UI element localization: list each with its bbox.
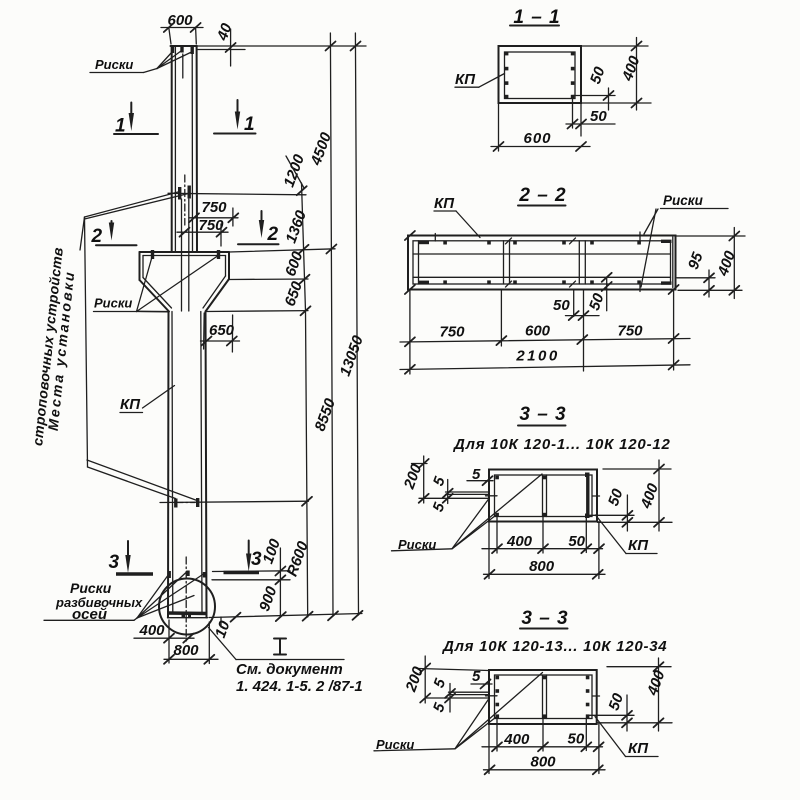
svg-text:3 – 3: 3 – 3 <box>521 608 568 629</box>
svg-text:КП: КП <box>628 537 649 554</box>
svg-text:400: 400 <box>503 731 530 748</box>
svg-text:800: 800 <box>530 754 556 771</box>
svg-text:900: 900 <box>256 584 281 614</box>
svg-text:5: 5 <box>430 474 449 488</box>
svg-text:50: 50 <box>553 297 570 314</box>
svg-text:1360: 1360 <box>283 208 311 246</box>
svg-text:40: 40 <box>214 21 236 44</box>
svg-text:2100: 2100 <box>515 348 559 365</box>
svg-text:3: 3 <box>109 552 120 573</box>
svg-text:Риски: Риски <box>94 296 132 311</box>
svg-text:КП: КП <box>455 71 476 88</box>
svg-text:50: 50 <box>605 486 627 508</box>
svg-text:13050: 13050 <box>337 333 367 379</box>
svg-text:50: 50 <box>590 108 607 125</box>
svg-text:650: 650 <box>282 279 307 309</box>
svg-text:См. документ: См. документ <box>236 661 343 678</box>
svg-text:750: 750 <box>617 323 643 340</box>
svg-text:400: 400 <box>714 248 739 279</box>
svg-text:КП: КП <box>120 396 141 413</box>
svg-text:Для 10К 120-1... 10К 120-12: Для 10К 120-1... 10К 120-12 <box>452 436 671 453</box>
svg-text:2: 2 <box>267 224 279 245</box>
svg-text:5: 5 <box>430 676 449 690</box>
svg-text:650: 650 <box>209 322 235 339</box>
svg-text:50: 50 <box>587 64 609 86</box>
svg-text:1. 424. 1-5. 2 /87-1: 1. 424. 1-5. 2 /87-1 <box>236 678 363 695</box>
svg-text:3 – 3: 3 – 3 <box>519 404 566 425</box>
svg-text:50: 50 <box>605 691 627 713</box>
svg-text:Риски: Риски <box>663 193 704 208</box>
svg-text:Для 10К 120-13... 10К 120-34: Для 10К 120-13... 10К 120-34 <box>441 638 667 655</box>
svg-text:95: 95 <box>685 250 707 272</box>
svg-text:50: 50 <box>568 731 585 748</box>
svg-text:2: 2 <box>91 226 103 247</box>
svg-text:Риски: Риски <box>70 580 112 596</box>
svg-text:400: 400 <box>138 622 165 639</box>
svg-text:2 – 2: 2 – 2 <box>518 185 566 206</box>
svg-text:600: 600 <box>167 12 193 29</box>
svg-text:КП: КП <box>434 195 455 212</box>
svg-text:400: 400 <box>619 53 644 84</box>
svg-text:750: 750 <box>439 324 465 341</box>
svg-text:50: 50 <box>586 291 608 313</box>
svg-text:400: 400 <box>644 668 669 699</box>
svg-text:Риски: Риски <box>95 57 133 72</box>
svg-text:5: 5 <box>472 668 481 685</box>
svg-text:8550: 8550 <box>312 396 340 434</box>
svg-text:800: 800 <box>529 558 555 575</box>
svg-text:750: 750 <box>201 199 227 216</box>
svg-text:50: 50 <box>568 533 585 550</box>
svg-text:600: 600 <box>523 130 551 147</box>
svg-text:5: 5 <box>430 500 449 514</box>
svg-text:600: 600 <box>525 323 551 340</box>
svg-text:750: 750 <box>198 217 224 234</box>
svg-text:1: 1 <box>244 114 255 135</box>
svg-text:КП: КП <box>628 740 649 757</box>
svg-text:400: 400 <box>506 533 533 550</box>
svg-text:800: 800 <box>173 642 199 659</box>
